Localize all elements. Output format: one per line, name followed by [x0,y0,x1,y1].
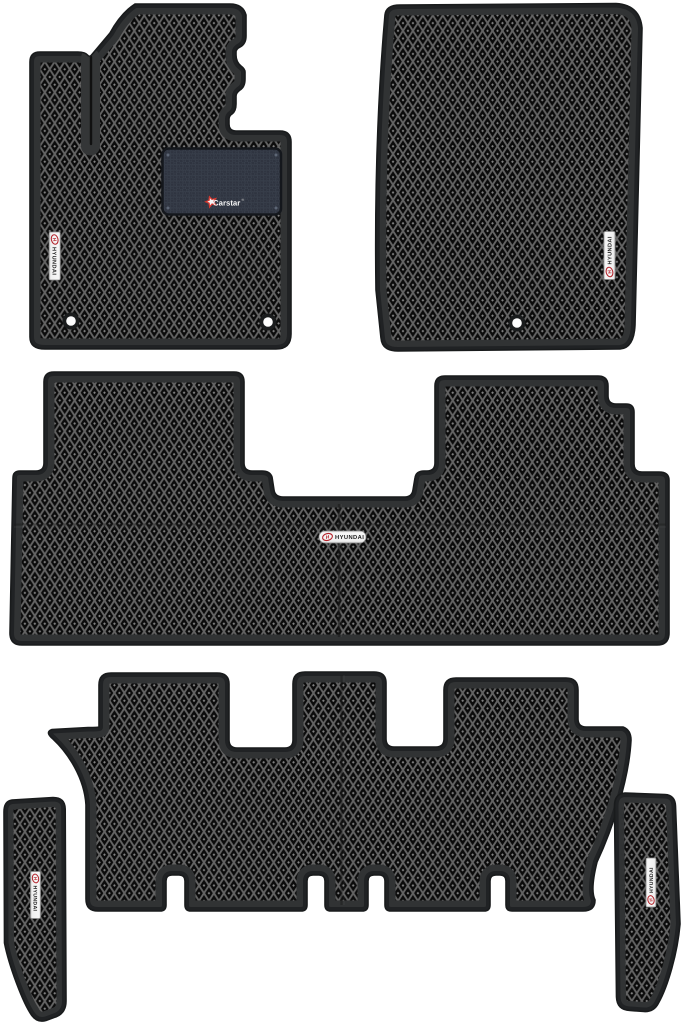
svg-text:®: ® [242,198,245,202]
svg-text:HYUNDAI: HYUNDAI [32,886,38,912]
svg-text:HYUNDAI: HYUNDAI [649,867,655,893]
svg-text:HYUNDAI: HYUNDAI [608,236,614,264]
svg-text:HYUNDAI: HYUNDAI [335,535,364,541]
svg-text:Carstar: Carstar [213,198,240,207]
svg-text:HYUNDAI: HYUNDAI [51,247,57,275]
